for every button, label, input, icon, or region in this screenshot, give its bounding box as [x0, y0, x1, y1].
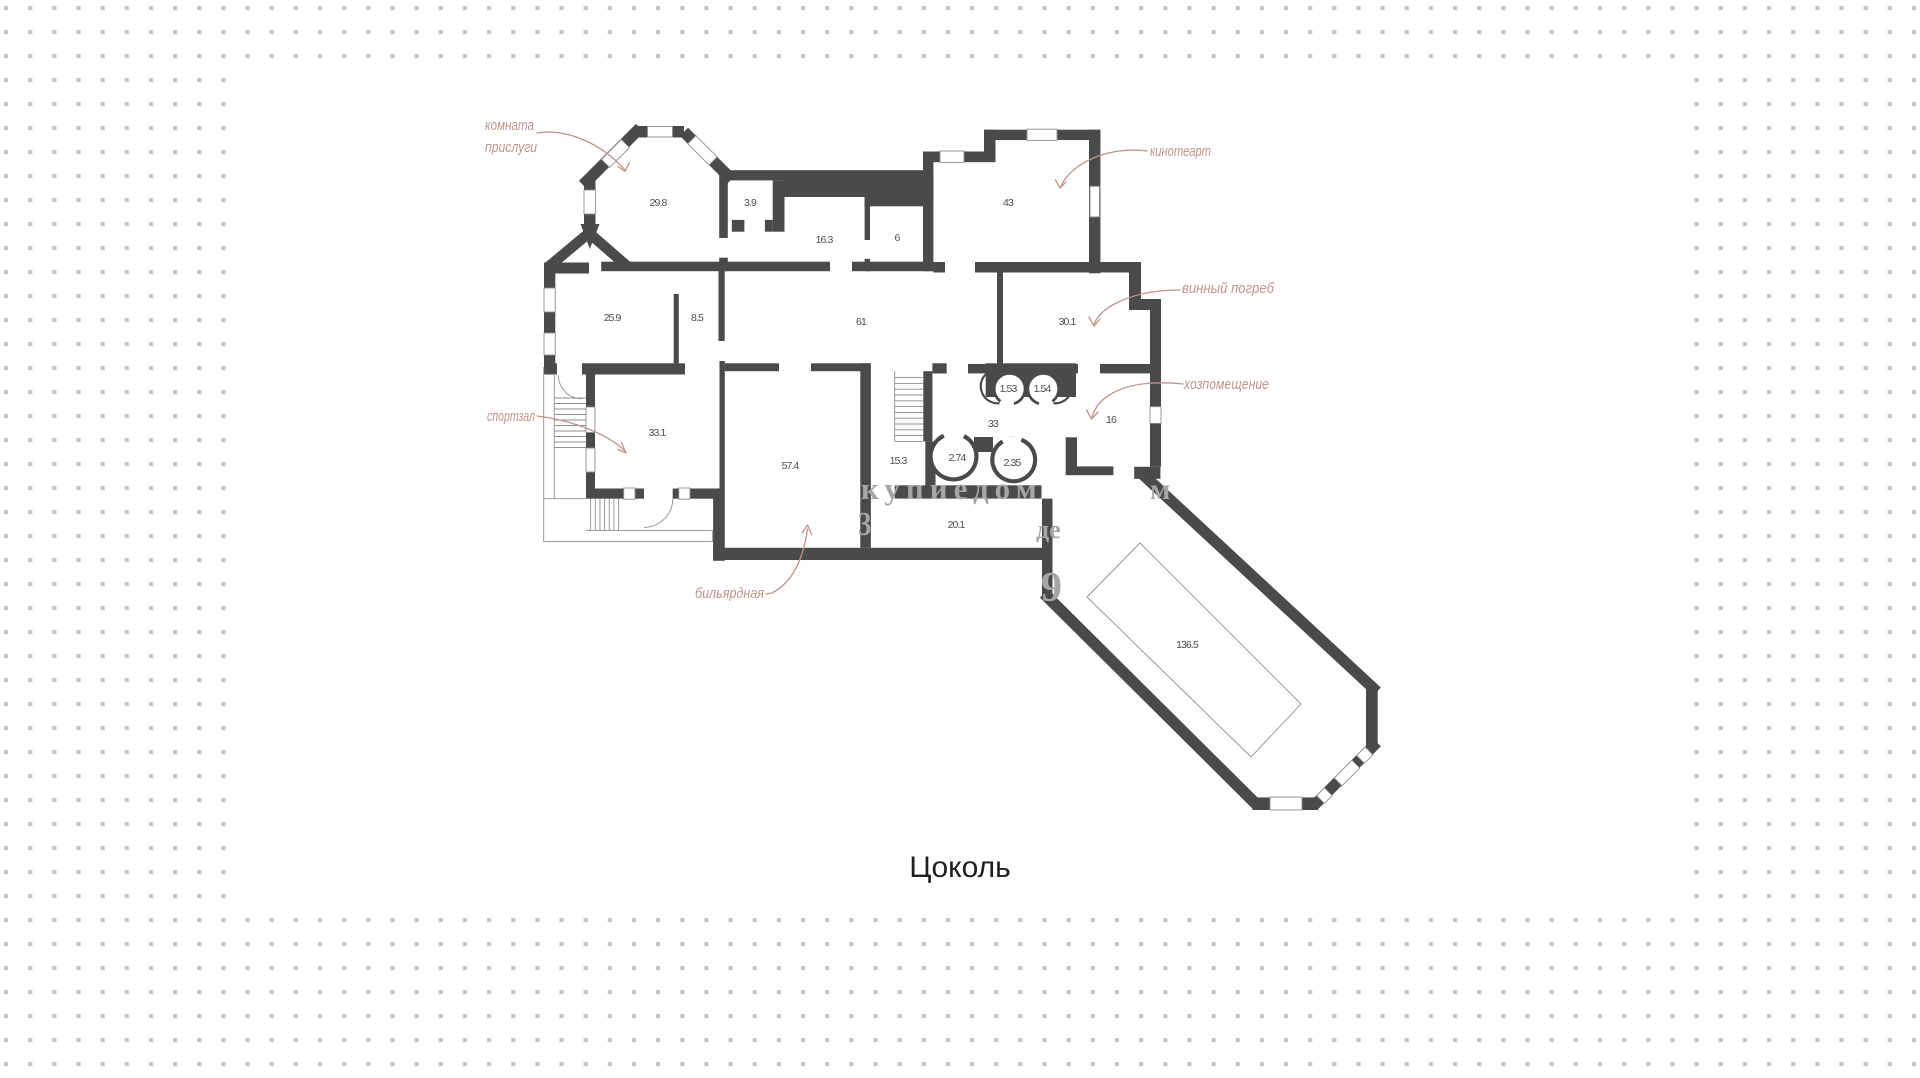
svg-text:комната: комната: [485, 118, 534, 134]
svg-text:прислуги: прислуги: [485, 140, 537, 156]
svg-text:9: 9: [1041, 565, 1062, 611]
svg-text:30.1: 30.1: [1059, 316, 1077, 328]
svg-text:де: де: [1036, 515, 1061, 544]
svg-text:29.8: 29.8: [650, 197, 668, 209]
svg-text:57.4: 57.4: [782, 460, 800, 472]
svg-text:1.53: 1.53: [1000, 383, 1018, 395]
svg-text:2.35: 2.35: [1004, 457, 1022, 469]
svg-text:33.1: 33.1: [649, 427, 667, 439]
svg-text:бильярдная: бильярдная: [695, 586, 764, 602]
svg-text:61: 61: [856, 316, 867, 328]
svg-text:3.9: 3.9: [744, 197, 757, 209]
svg-text:2.74: 2.74: [949, 452, 967, 464]
svg-text:м: м: [1150, 473, 1170, 506]
svg-text:кинотеарт: кинотеарт: [1150, 144, 1211, 160]
svg-text:16.3: 16.3: [816, 234, 834, 246]
svg-text:З: З: [858, 506, 871, 543]
svg-text:43: 43: [1003, 197, 1014, 209]
svg-text:купиедом: купиедом: [861, 471, 1043, 506]
svg-text:16: 16: [1106, 414, 1117, 426]
svg-text:Цоколь: Цоколь: [909, 851, 1011, 884]
svg-text:33: 33: [988, 418, 999, 430]
svg-text:хозпомещение: хозпомещение: [1183, 377, 1269, 393]
svg-text:20.1: 20.1: [948, 519, 966, 531]
svg-text:8.5: 8.5: [691, 312, 704, 324]
svg-text:136.5: 136.5: [1176, 639, 1199, 651]
svg-text:спортзал: спортзал: [487, 409, 535, 425]
svg-text:винный погреб: винный погреб: [1182, 281, 1275, 297]
svg-text:1.54: 1.54: [1034, 383, 1052, 395]
svg-text:25.9: 25.9: [604, 312, 622, 324]
svg-text:15.3: 15.3: [890, 455, 908, 467]
